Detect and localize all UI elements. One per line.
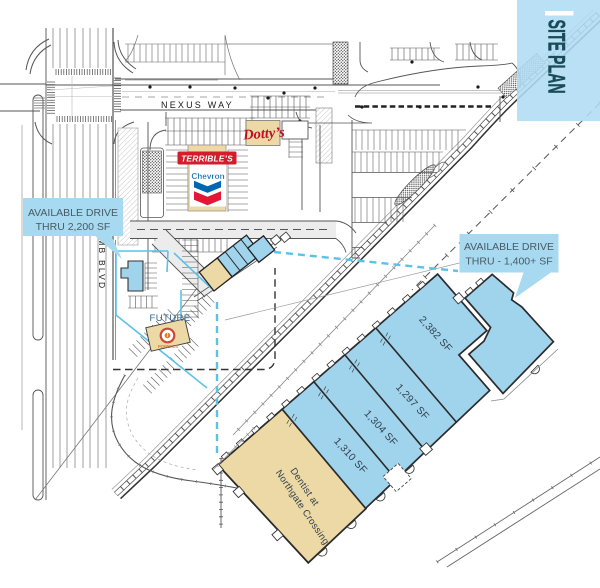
svg-text:AVAILABLE DRIVE: AVAILABLE DRIVE (464, 241, 554, 253)
svg-text:Dotty’s: Dotty’s (242, 125, 286, 144)
svg-text:FUTURE: FUTURE (150, 313, 191, 324)
svg-text:SITE PLAN: SITE PLAN (542, 20, 569, 94)
svg-text:TERRIBLE’S: TERRIBLE’S (181, 154, 233, 164)
svg-text:NEXUS WAY: NEXUS WAY (161, 100, 234, 110)
svg-text:THRU - 1,400+ SF: THRU - 1,400+ SF (465, 256, 552, 268)
svg-text:AVAILABLE DRIVE: AVAILABLE DRIVE (28, 207, 118, 219)
svg-text:THRU 2,200 SF: THRU 2,200 SF (36, 221, 111, 233)
svg-text:Chevron: Chevron (191, 172, 224, 181)
svg-text:POPEYES: POPEYES (158, 344, 178, 349)
